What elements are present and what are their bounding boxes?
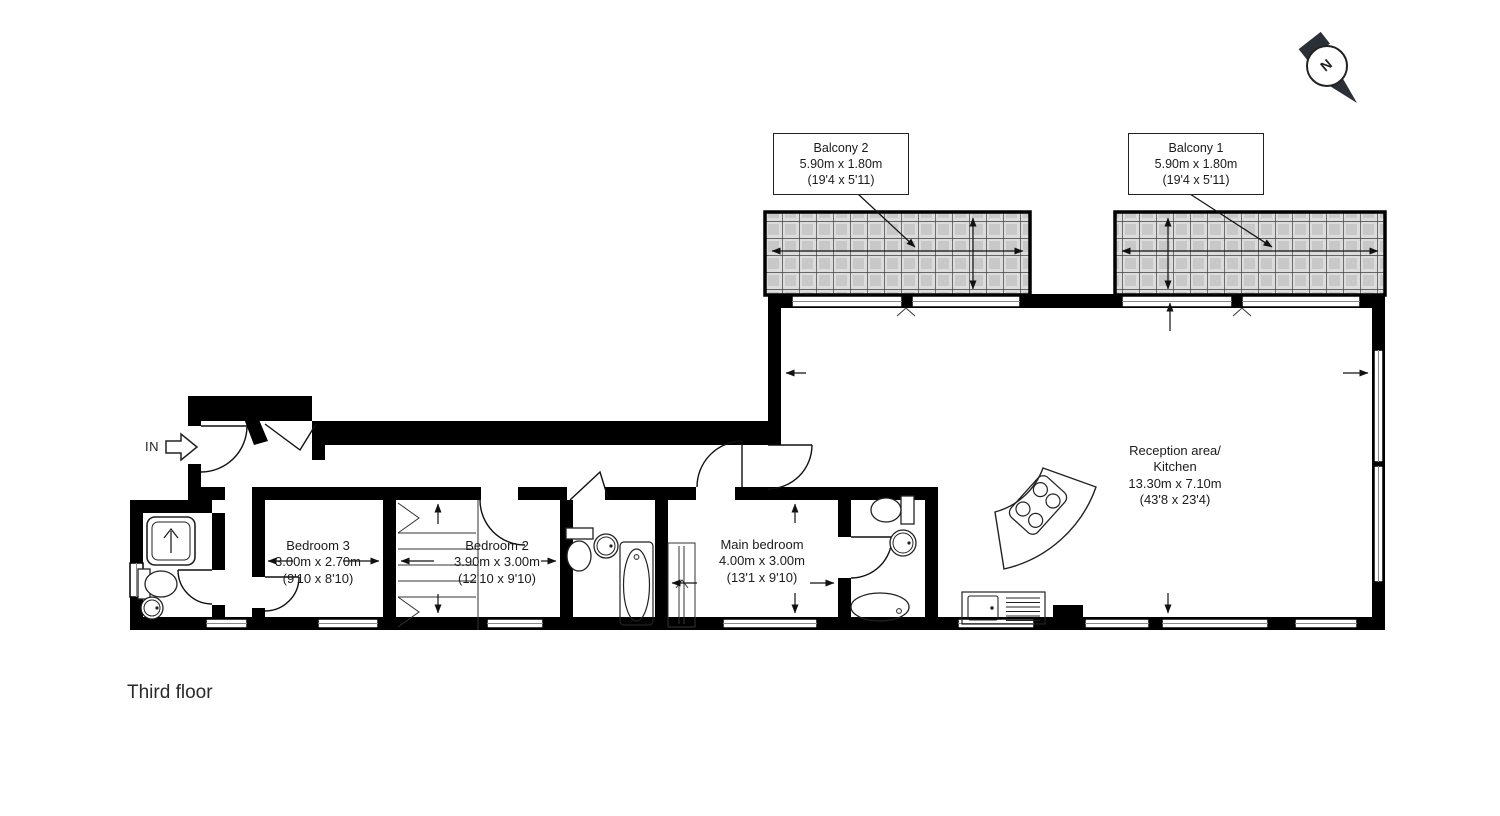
bathtub [620, 542, 653, 625]
balcony-1-deck [1115, 212, 1385, 295]
room-name: Bedroom 3 [240, 538, 396, 554]
room-name-line2: Kitchen [1097, 459, 1253, 475]
sink [890, 530, 916, 556]
balcony-2-callout: Balcony 2 5.90m x 1.80m (19'4 x 5'11) [773, 133, 909, 195]
room-dims-metric: 4.00m x 3.00m [684, 553, 840, 569]
room-label-reception-kitchen: Reception area/ Kitchen 13.30m x 7.10m (… [1097, 443, 1253, 508]
toilet [138, 569, 177, 599]
room-dims-imperial: (13'1 x 9'10) [684, 570, 840, 586]
room-name: Bedroom 2 [419, 538, 575, 554]
balcony-1-callout: Balcony 1 5.90m x 1.80m (19'4 x 5'11) [1128, 133, 1264, 195]
balcony-name: Balcony 1 [1169, 140, 1224, 156]
balcony-dims-metric: 5.90m x 1.80m [1155, 156, 1238, 172]
room-dims-metric: 3.00m x 2.70m [240, 554, 396, 570]
floor-plan: Balcony 2 5.90m x 1.80m (19'4 x 5'11) Ba… [0, 0, 1500, 816]
shower [147, 517, 195, 565]
room-dims-metric: 3.90m x 3.00m [419, 554, 575, 570]
bathtub [851, 593, 909, 621]
entrance-arrow-icon [166, 434, 197, 460]
balcony-2-deck [765, 212, 1030, 295]
room-dims-imperial: (12'10 x 9'10) [419, 571, 575, 587]
balcony-dims-imperial: (19'4 x 5'11) [807, 172, 874, 188]
balcony-dims-imperial: (19'4 x 5'11) [1162, 172, 1229, 188]
floor-plan-graphic [0, 0, 1500, 816]
entrance-label: IN [145, 439, 159, 454]
room-label-bedroom-2: Bedroom 2 3.90m x 3.00m (12'10 x 9'10) [419, 538, 575, 587]
room-label-main-bedroom: Main bedroom 4.00m x 3.00m (13'1 x 9'10) [684, 537, 840, 586]
toilet [871, 496, 914, 524]
floor-title: Third floor [127, 682, 213, 704]
kitchen-counter [995, 468, 1096, 569]
room-name: Reception area/ [1097, 443, 1253, 459]
sink [141, 597, 163, 619]
room-dims-imperial: (9'10 x 8'10) [240, 571, 396, 587]
room-dims-imperial: (43'8 x 23'4) [1097, 492, 1253, 508]
sink [594, 534, 618, 558]
balcony-name: Balcony 2 [814, 140, 869, 156]
room-dims-metric: 13.30m x 7.10m [1097, 476, 1253, 492]
room-name: Main bedroom [684, 537, 840, 553]
balcony-dims-metric: 5.90m x 1.80m [800, 156, 883, 172]
room-label-bedroom-3: Bedroom 3 3.00m x 2.70m (9'10 x 8'10) [240, 538, 396, 587]
